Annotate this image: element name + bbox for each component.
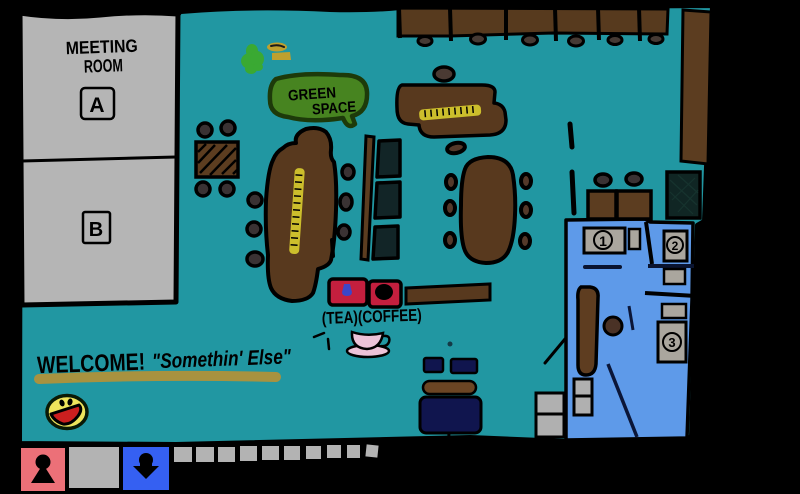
svg-text:"Somethin' Else": "Somethin' Else" [152, 345, 293, 373]
svg-text:B: B [89, 219, 103, 241]
svg-text:2: 2 [672, 239, 679, 253]
svg-text:(TEA)(COFFEE): (TEA)(COFFEE) [321, 306, 422, 328]
svg-text:A: A [89, 94, 104, 117]
svg-text:1: 1 [599, 233, 607, 249]
svg-text:MEETING: MEETING [65, 36, 138, 59]
svg-text:ROOM: ROOM [84, 55, 124, 76]
svg-text:3: 3 [668, 335, 675, 350]
svg-text:SPACE: SPACE [311, 98, 356, 118]
